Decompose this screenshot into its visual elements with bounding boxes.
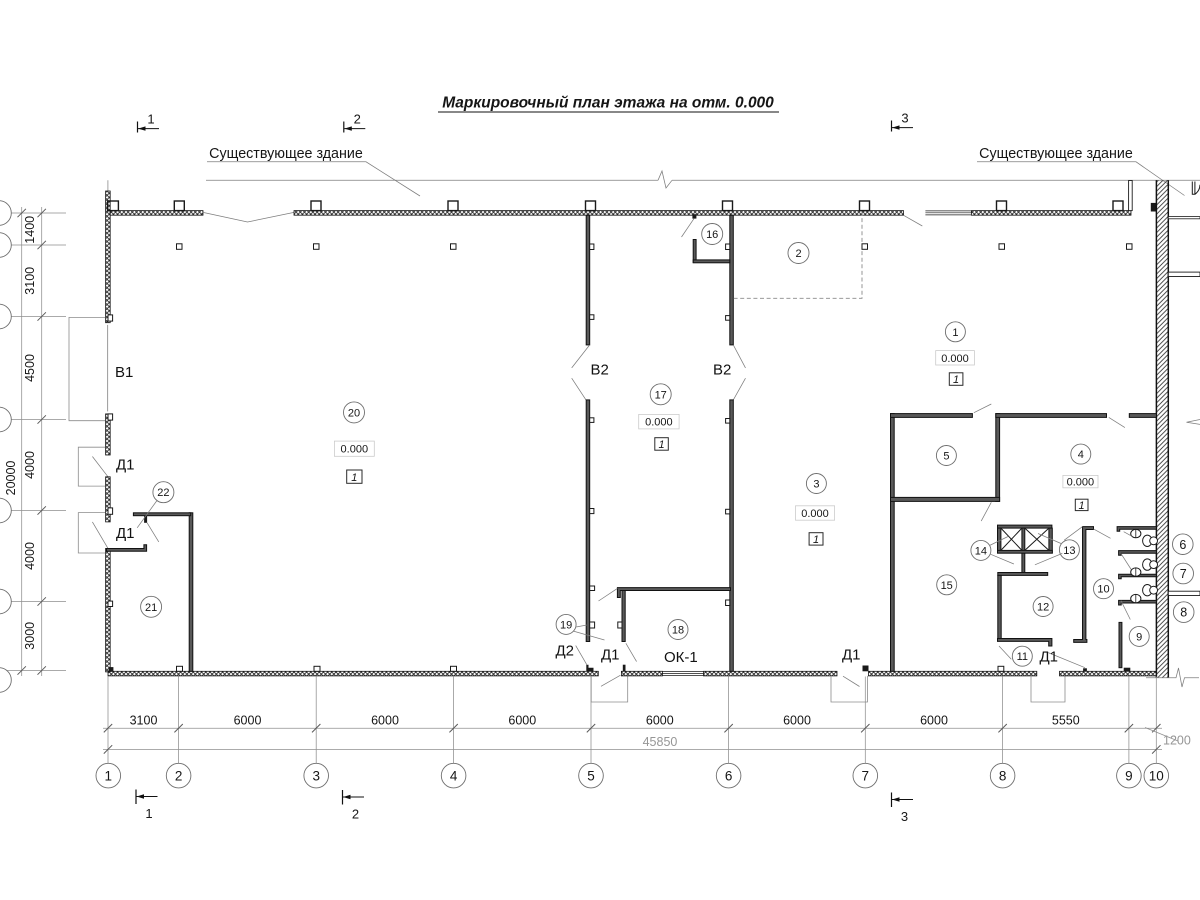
svg-text:Д2: Д2: [556, 643, 575, 660]
svg-text:1200: 1200: [1163, 734, 1191, 748]
svg-text:3: 3: [312, 768, 320, 783]
svg-text:0.000: 0.000: [801, 508, 829, 520]
svg-text:В2: В2: [591, 362, 609, 379]
svg-text:6000: 6000: [783, 714, 811, 728]
svg-text:5: 5: [587, 768, 595, 783]
svg-text:10: 10: [1097, 584, 1109, 596]
svg-text:20: 20: [348, 407, 360, 419]
svg-text:2: 2: [352, 807, 359, 822]
svg-text:В1: В1: [115, 364, 133, 381]
svg-text:1: 1: [813, 534, 819, 546]
svg-text:0.000: 0.000: [645, 417, 673, 429]
svg-text:Существующее здание: Существующее здание: [979, 146, 1133, 162]
svg-text:18: 18: [672, 625, 684, 637]
svg-text:3100: 3100: [130, 714, 158, 728]
svg-text:4000: 4000: [23, 451, 37, 479]
svg-text:2: 2: [175, 768, 183, 783]
svg-text:16: 16: [706, 229, 718, 241]
svg-text:5: 5: [943, 451, 949, 463]
svg-text:10: 10: [1149, 768, 1164, 783]
svg-text:0.000: 0.000: [341, 444, 369, 456]
svg-text:6000: 6000: [234, 714, 262, 728]
svg-text:1: 1: [145, 806, 152, 821]
svg-text:Д1: Д1: [116, 525, 135, 542]
svg-text:6000: 6000: [508, 714, 536, 728]
svg-text:1400: 1400: [23, 216, 37, 244]
svg-text:11: 11: [1017, 651, 1028, 663]
svg-text:6: 6: [725, 768, 733, 783]
svg-text:45850: 45850: [643, 735, 678, 749]
svg-text:Д1: Д1: [842, 647, 861, 664]
svg-text:8: 8: [1180, 606, 1187, 620]
svg-text:2: 2: [354, 112, 361, 127]
svg-text:4: 4: [450, 768, 458, 783]
svg-text:1: 1: [658, 439, 664, 451]
svg-text:9: 9: [1136, 631, 1142, 643]
svg-text:3000: 3000: [23, 622, 37, 650]
svg-text:9: 9: [1125, 768, 1133, 783]
svg-text:14: 14: [975, 545, 987, 557]
svg-text:0.000: 0.000: [941, 353, 969, 365]
svg-text:3: 3: [813, 479, 819, 491]
svg-text:19: 19: [560, 619, 572, 631]
svg-text:ОК-1: ОК-1: [664, 649, 698, 666]
svg-text:В2: В2: [713, 362, 731, 379]
svg-text:2: 2: [795, 248, 801, 260]
svg-text:21: 21: [145, 602, 157, 614]
svg-text:6000: 6000: [920, 714, 948, 728]
svg-text:13: 13: [1063, 545, 1075, 557]
svg-text:1: 1: [147, 112, 154, 127]
svg-text:4500: 4500: [23, 354, 37, 382]
svg-text:1: 1: [351, 472, 357, 484]
svg-text:1: 1: [1079, 500, 1085, 512]
svg-text:3: 3: [901, 111, 908, 126]
svg-text:Д1: Д1: [601, 647, 620, 664]
svg-text:22: 22: [157, 487, 169, 499]
svg-text:Существующее здание: Существующее здание: [209, 146, 363, 162]
svg-text:3: 3: [901, 809, 908, 824]
svg-text:Маркировочный план этажа на от: Маркировочный план этажа на отм. 0.000: [442, 95, 774, 112]
svg-text:6000: 6000: [646, 714, 674, 728]
svg-text:7: 7: [1180, 567, 1187, 581]
svg-text:1: 1: [952, 327, 958, 339]
svg-text:1: 1: [105, 768, 113, 783]
svg-text:Д1: Д1: [116, 457, 135, 474]
svg-text:12: 12: [1037, 602, 1049, 614]
svg-text:15: 15: [941, 580, 953, 592]
svg-text:6000: 6000: [371, 714, 399, 728]
svg-text:0.000: 0.000: [1067, 476, 1095, 488]
svg-text:4000: 4000: [23, 542, 37, 570]
svg-text:6: 6: [1179, 538, 1186, 552]
svg-text:5550: 5550: [1052, 714, 1080, 728]
svg-text:8: 8: [999, 768, 1007, 783]
svg-text:20000: 20000: [4, 461, 18, 496]
svg-text:3100: 3100: [23, 267, 37, 295]
svg-text:1: 1: [953, 374, 959, 386]
svg-text:7: 7: [862, 768, 870, 783]
svg-text:4: 4: [1078, 449, 1084, 461]
svg-text:Д1: Д1: [1040, 649, 1059, 666]
svg-text:17: 17: [655, 389, 667, 401]
